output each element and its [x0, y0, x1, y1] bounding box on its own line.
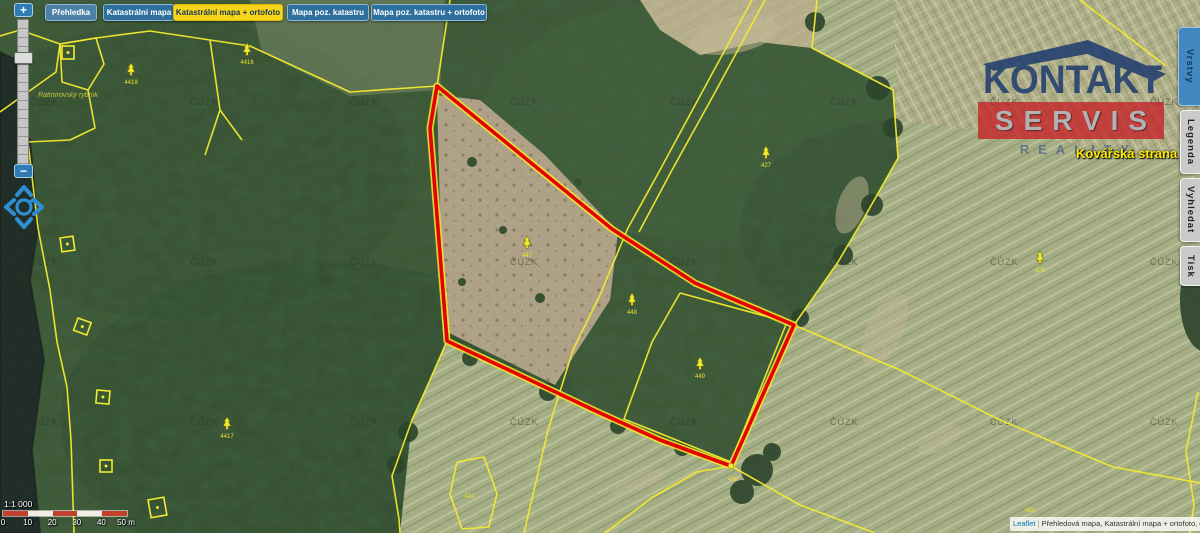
cuzk-watermark: ČÚZK [510, 97, 539, 107]
zoom-slider-handle[interactable] [14, 52, 33, 64]
tab-vrstvy[interactable]: Vrstvy [1178, 27, 1200, 106]
pan-center-icon[interactable] [17, 200, 31, 214]
map-viewport: ČÚZKČÚZKČÚZKČÚZKČÚZKČÚZKČÚZKČÚZKČÚZKČÚZK… [0, 0, 1200, 533]
parcel-corner-point [728, 463, 734, 469]
pan-control [1, 182, 47, 232]
tab-vyhledat[interactable]: Vyhledat [1180, 178, 1200, 242]
zoom-slider-track[interactable] [17, 19, 29, 165]
cuzk-watermark: ČÚZK [190, 97, 219, 107]
parcel-number: 425 [1035, 268, 1046, 274]
parcel-number: 4418 [124, 80, 138, 86]
pond-name-label: Ratmírovský rybník [38, 92, 98, 99]
scale-bar [3, 511, 127, 516]
parcel-number: 4416 [240, 60, 254, 66]
cuzk-watermark: ČÚZK [1150, 257, 1179, 267]
cuzk-watermark: ČÚZK [350, 417, 379, 427]
parcel-number: 4417 [220, 434, 234, 440]
pan-down-icon[interactable] [17, 219, 31, 227]
cuzk-watermark: ČÚZK [990, 97, 1019, 107]
cuzk-watermark: ČÚZK [830, 257, 859, 267]
tab-mapa-poz-katastru[interactable]: Mapa poz. katastru [287, 4, 369, 21]
scale-tick-label: 30 [72, 518, 81, 527]
cuzk-watermark: ČÚZK [350, 97, 379, 107]
tab-katastralni-mapa[interactable]: Katastrální mapa [103, 4, 175, 21]
parcel-number: 427 [761, 163, 772, 169]
parcel-number: 447 [522, 253, 533, 259]
leaflet-link[interactable]: Leaflet [1013, 519, 1036, 528]
tab-mapa-poz-katastru-ortofoto[interactable]: Mapa poz. katastru + ortofoto [371, 4, 487, 21]
scale-tick-label: 10 [23, 518, 32, 527]
scale-tick-label: 50 m [117, 518, 135, 527]
parcel-number: 449 [695, 374, 706, 380]
attribution-separator: | [1038, 519, 1040, 528]
cuzk-watermark: ČÚZK [830, 417, 859, 427]
tab-tisk[interactable]: Tisk [1180, 246, 1200, 286]
zoom-in-button[interactable]: + [14, 3, 33, 17]
map-canvas[interactable]: ČÚZKČÚZKČÚZKČÚZKČÚZKČÚZKČÚZKČÚZKČÚZKČÚZK… [0, 0, 1200, 533]
scale-tick-labels: 01020304050 m [3, 518, 143, 528]
zoom-out-button[interactable]: − [14, 164, 33, 178]
cuzk-watermark: ČÚZK [30, 417, 59, 427]
scale-tick-label: 0 [1, 518, 5, 527]
parcel-number: 448 [627, 310, 638, 316]
cuzk-watermark: ČÚZK [350, 257, 379, 267]
parcel-number: 428 [728, 477, 739, 483]
scale-tick-label: 20 [48, 518, 57, 527]
tab-katastralni-mapa-ortofoto[interactable]: Katastrální mapa + ortofoto [173, 4, 283, 21]
cuzk-watermark: ČÚZK [1150, 97, 1179, 107]
pan-left-icon[interactable] [6, 200, 14, 214]
orthophoto-terrain [0, 0, 1200, 533]
pan-up-icon[interactable] [17, 187, 31, 195]
tab-prehledka[interactable]: Přehledka [45, 4, 97, 21]
cuzk-watermark: ČÚZK [510, 417, 539, 427]
cuzk-watermark: ČÚZK [990, 257, 1019, 267]
scale-ratio: 1:1 000 [4, 499, 32, 509]
pan-right-icon[interactable] [34, 200, 42, 214]
cuzk-watermark: ČÚZK [190, 417, 219, 427]
tab-legenda[interactable]: Legenda [1180, 110, 1200, 174]
scale-tick-label: 40 [97, 518, 106, 527]
cuzk-watermark: ČÚZK [190, 257, 219, 267]
attribution-text: Přehledová mapa, Katastrální mapa + orto… [1041, 519, 1200, 528]
cuzk-watermark: ČÚZK [670, 417, 699, 427]
cuzk-watermark: ČÚZK [830, 97, 859, 107]
parcel-number: 481 [1025, 508, 1036, 514]
attribution-bar: Leaflet|Přehledová mapa, Katastrální map… [1010, 517, 1200, 531]
cuzk-watermark: ČÚZK [1150, 417, 1179, 427]
parcel-number: 442 [464, 494, 475, 500]
